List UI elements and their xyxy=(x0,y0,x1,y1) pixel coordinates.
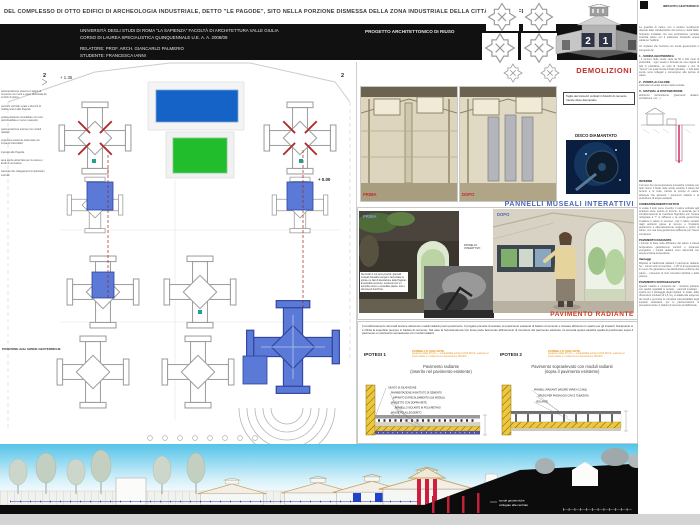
detail-section-ipotesi1: GIUNTO DI DILATAZIONE PAVIMENTAZIONE IN … xyxy=(362,381,494,439)
detail-section-ipotesi2: PANNELLI RADIANTI (MISURE VARIE A 1,5 MQ… xyxy=(498,381,634,439)
rc-body: all'interno dell'ambiente (pavimenti rad… xyxy=(639,94,699,101)
caption-ipotesi1: Pavimento radiante (inserito nel pavimen… xyxy=(388,364,494,375)
photo-label-prima: PRIMA xyxy=(363,214,377,219)
caption-ipotesi2: Pavimento sopraelevato con moduli radian… xyxy=(510,364,634,375)
legend-note: pavimentazione interna con moduli radian… xyxy=(1,128,47,134)
pagoda-axonometric: 2 1 xyxy=(552,4,646,60)
geothermal-probe xyxy=(447,496,450,513)
amphitheater-arcs xyxy=(239,408,335,444)
presentation-board: DEL COMPLESSO DI OTTO EDIFICI DI ARCHEOL… xyxy=(0,0,700,525)
red-column xyxy=(417,479,421,505)
pool xyxy=(156,90,238,122)
section-heading-radiante: PAVIMENTO RADIANTE xyxy=(460,311,634,318)
blue-room xyxy=(287,182,313,210)
rc-body: Un impianto che funziona con sonde geote… xyxy=(639,45,699,52)
blue-door xyxy=(375,493,383,502)
relatore-line: RELATORE: PROF. ARCH. GIANCARLO PALMERIO xyxy=(80,46,380,53)
plan-tree-row xyxy=(148,436,258,441)
pagoda-plan xyxy=(59,102,131,174)
blue-door xyxy=(353,493,361,502)
legend-note: copertura esistente sistemata con impian… xyxy=(1,139,47,145)
section-marker: 2 xyxy=(341,73,344,79)
legend-note: area verde attrezzata per la sosta e i l… xyxy=(1,159,47,165)
header-university: UNIVERSITÀ DEGLI STUDI DI ROMA "LA SAPIE… xyxy=(80,28,380,41)
site-section-elevation: sonde geotermiche collegate alla central… xyxy=(0,444,650,515)
legend-note: ingressi alle Pagode xyxy=(1,151,47,154)
isolante-label-1: PANNELLO ISOLANTE spessore totale 35 mm … xyxy=(412,349,490,359)
disco-label: DISCO DIAMANTATO xyxy=(558,133,634,138)
photo-label-dopo: DOPO xyxy=(497,212,509,217)
column-header: IMPIANTO GEOTERMICO xyxy=(639,4,699,8)
rc-body: Il terreno ha una temperatura pressoché … xyxy=(639,184,699,200)
ipotesi-2-label: IPOTESI 2 xyxy=(500,352,522,357)
layer-label: PANNELLI RADIANTI (MISURE VARIE A 1,5 MQ… xyxy=(534,389,587,392)
logo-mark xyxy=(640,1,648,9)
ipotesi-1-label: IPOTESI 1 xyxy=(364,352,386,357)
sonde-note: POSIZIONE delle SONDE GEOTERMICHE xyxy=(2,347,61,351)
layer-label: IMPIANTO DI RISCALDAMENTO (SUI MODULI) xyxy=(393,397,445,400)
section-label-line2: collegate alla centrale xyxy=(499,503,528,507)
legend-note: percorsi verticali: scale e blocchi di r… xyxy=(1,105,47,111)
geothermal-probe xyxy=(432,496,435,513)
existing-wall xyxy=(366,385,375,435)
layer-label: PAVIMENTAZIONE IN BATTUTO DI CEMENTO xyxy=(391,392,442,395)
plan-legend-notes: pavimentazione esterna in lastre di ceme… xyxy=(1,90,47,182)
section-label-line1: sonde geotermiche xyxy=(499,499,525,503)
geothermal-scheme-diagram xyxy=(639,103,697,169)
red-column xyxy=(425,479,429,505)
legend-note: solaio esistente consolidato con rete el… xyxy=(1,116,47,122)
blue-room xyxy=(87,182,113,210)
rc-body: - il numero delle sonde varia da 50 a 10… xyxy=(639,58,699,78)
university-line2: CORSO DI LAUREA SPECIALISTICA QUINQUENNA… xyxy=(80,35,380,42)
blue-room xyxy=(243,356,267,384)
photo-diamond-disc xyxy=(566,140,630,194)
rc-body: La quantità di calore con il relativo re… xyxy=(639,26,699,42)
section-marker: 2 xyxy=(43,73,46,79)
photo-label-dopo: DOPO xyxy=(462,192,474,197)
layer-label: SPAZIO PER PASSAGGIO CAVI E TUBAZIONI xyxy=(538,395,589,398)
window xyxy=(473,99,499,115)
board-number-left: 2 xyxy=(585,36,591,47)
photo-interior-before xyxy=(360,86,458,202)
board-number-right: 1 xyxy=(603,36,609,47)
hill-tree xyxy=(601,448,629,466)
sports-field xyxy=(173,138,227,173)
master-plan-drawing: 2 2 + 1.35 + 0.00 POSIZIONE delle SONDE … xyxy=(0,60,356,444)
radiante-intro: Il condizionamento dei locali avviene at… xyxy=(362,325,633,336)
window xyxy=(417,97,443,113)
layer-label: PANNELLO ISOLANTE IN POLIURETANO xyxy=(395,407,441,410)
level-label: + 1.35 xyxy=(60,75,73,80)
musei-caption: Nei locali in cui sono previsti i pannel… xyxy=(360,272,408,292)
studente-line: STUDENTE: FRANCESCA IANNI xyxy=(80,53,380,60)
section-heading-demolizioni: DEMOLIZIONI xyxy=(500,66,632,75)
panel-callout: PANNELLO INTERATTIVO xyxy=(464,244,492,250)
level-label: + 0.00 xyxy=(318,177,331,182)
blue-room xyxy=(92,272,114,298)
geothermal-probe xyxy=(477,493,480,513)
cut-panel xyxy=(522,117,533,181)
rc-body: Rispetto ai tradizionali radiatori il pa… xyxy=(639,262,699,278)
photo-interior-after xyxy=(459,86,557,202)
legend-note: pavimentazione esterna in lastre di ceme… xyxy=(1,90,47,100)
pagoda-plan xyxy=(264,102,336,174)
rc-body: In estate il ciclo viene invertito: il c… xyxy=(639,207,699,236)
pagoda-plan xyxy=(57,336,129,408)
layer-label: MASSETTO ALLEGGERITO xyxy=(391,412,422,415)
existing-wall xyxy=(502,385,511,435)
demolizioni-note: Taglio dei tramezzi verticali in blocchi… xyxy=(563,92,635,105)
panel-callout-line2: INTERATTIVO xyxy=(464,247,492,250)
right-text-column: IMPIANTO GEOTERMICO La quantità di calor… xyxy=(638,0,700,514)
rc-body: Questo modulo è composto da: - struttura… xyxy=(639,285,699,308)
university-line1: UNIVERSITÀ DEGLI STUDI DI ROMA "LA SAPIE… xyxy=(80,28,380,35)
layer-label: MASSETTO CON DOPPIA RETE xyxy=(391,402,427,405)
cut-panel xyxy=(505,115,516,181)
photo-label-prima: PRIMA xyxy=(363,192,377,197)
cut-panel xyxy=(488,117,499,181)
isolante-label-2: PANNELLO ISOLANTE spessore totale 35 mm … xyxy=(548,349,630,359)
header-credits: RELATORE: PROF. ARCH. GIANCARLO PALMERIO… xyxy=(80,46,380,59)
geothermal-probe xyxy=(462,496,465,513)
window xyxy=(516,97,542,113)
rc-body: I principi di base sulla diffusione del … xyxy=(639,242,699,255)
hill-tree xyxy=(535,458,555,474)
legend-note: tracciato dei collegamenti impiantistici… xyxy=(1,170,47,176)
layer-label: ISOLANTE xyxy=(536,401,548,404)
board-footer-margin xyxy=(0,514,700,525)
rc-body: collocata nel locale tecnico della centr… xyxy=(639,84,699,87)
layer-label: GIUNTO DI DILATAZIONE xyxy=(388,387,417,390)
radiant-panels xyxy=(511,411,621,414)
render-interactive-panel-after xyxy=(493,209,634,313)
window xyxy=(374,99,400,115)
pagoda-plan xyxy=(162,336,234,408)
